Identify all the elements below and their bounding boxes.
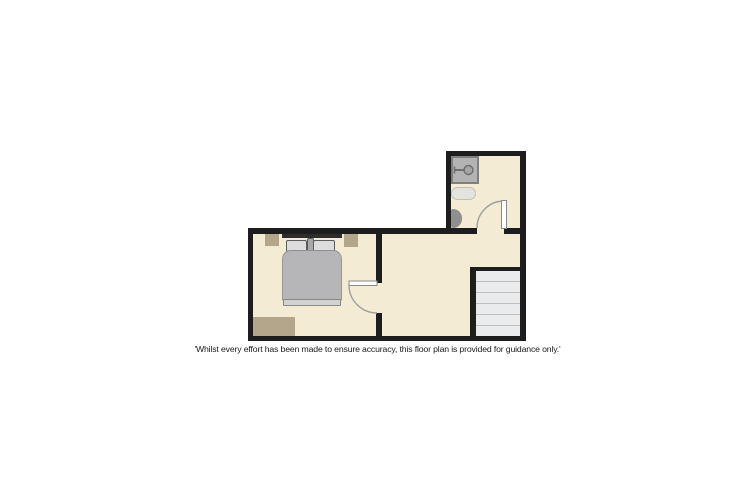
stair-tread <box>476 271 520 282</box>
toilet <box>451 187 476 200</box>
wall-divider-upper <box>376 228 382 283</box>
stair-tread <box>476 282 520 293</box>
rug <box>253 317 295 336</box>
stair-tread <box>476 293 520 304</box>
shower <box>451 156 479 184</box>
nightstand-right <box>344 233 358 247</box>
wall-left <box>248 228 253 341</box>
disclaimer-text: 'Whilst every effort has been made to en… <box>0 344 755 354</box>
bed-duvet <box>282 250 342 302</box>
bed-footboard <box>283 299 341 306</box>
wall-bottom <box>248 336 526 341</box>
wall-stairs-top <box>470 267 526 271</box>
stair-tread <box>476 315 520 326</box>
wall-main-top-left <box>248 228 477 234</box>
wall-main-top-right <box>504 228 526 234</box>
wall-bathroom-top <box>446 151 526 156</box>
double-bed <box>282 233 342 307</box>
floorplan-canvas: 'Whilst every effort has been made to en… <box>0 0 755 504</box>
stair-tread <box>476 304 520 315</box>
wall-stairs-left <box>470 267 476 336</box>
staircase <box>476 271 520 336</box>
wall-right <box>520 151 526 341</box>
wall-bathroom-left <box>446 151 451 234</box>
wall-divider-lower <box>376 313 382 341</box>
nightstand-left <box>265 233 279 246</box>
stair-tread <box>476 326 520 336</box>
